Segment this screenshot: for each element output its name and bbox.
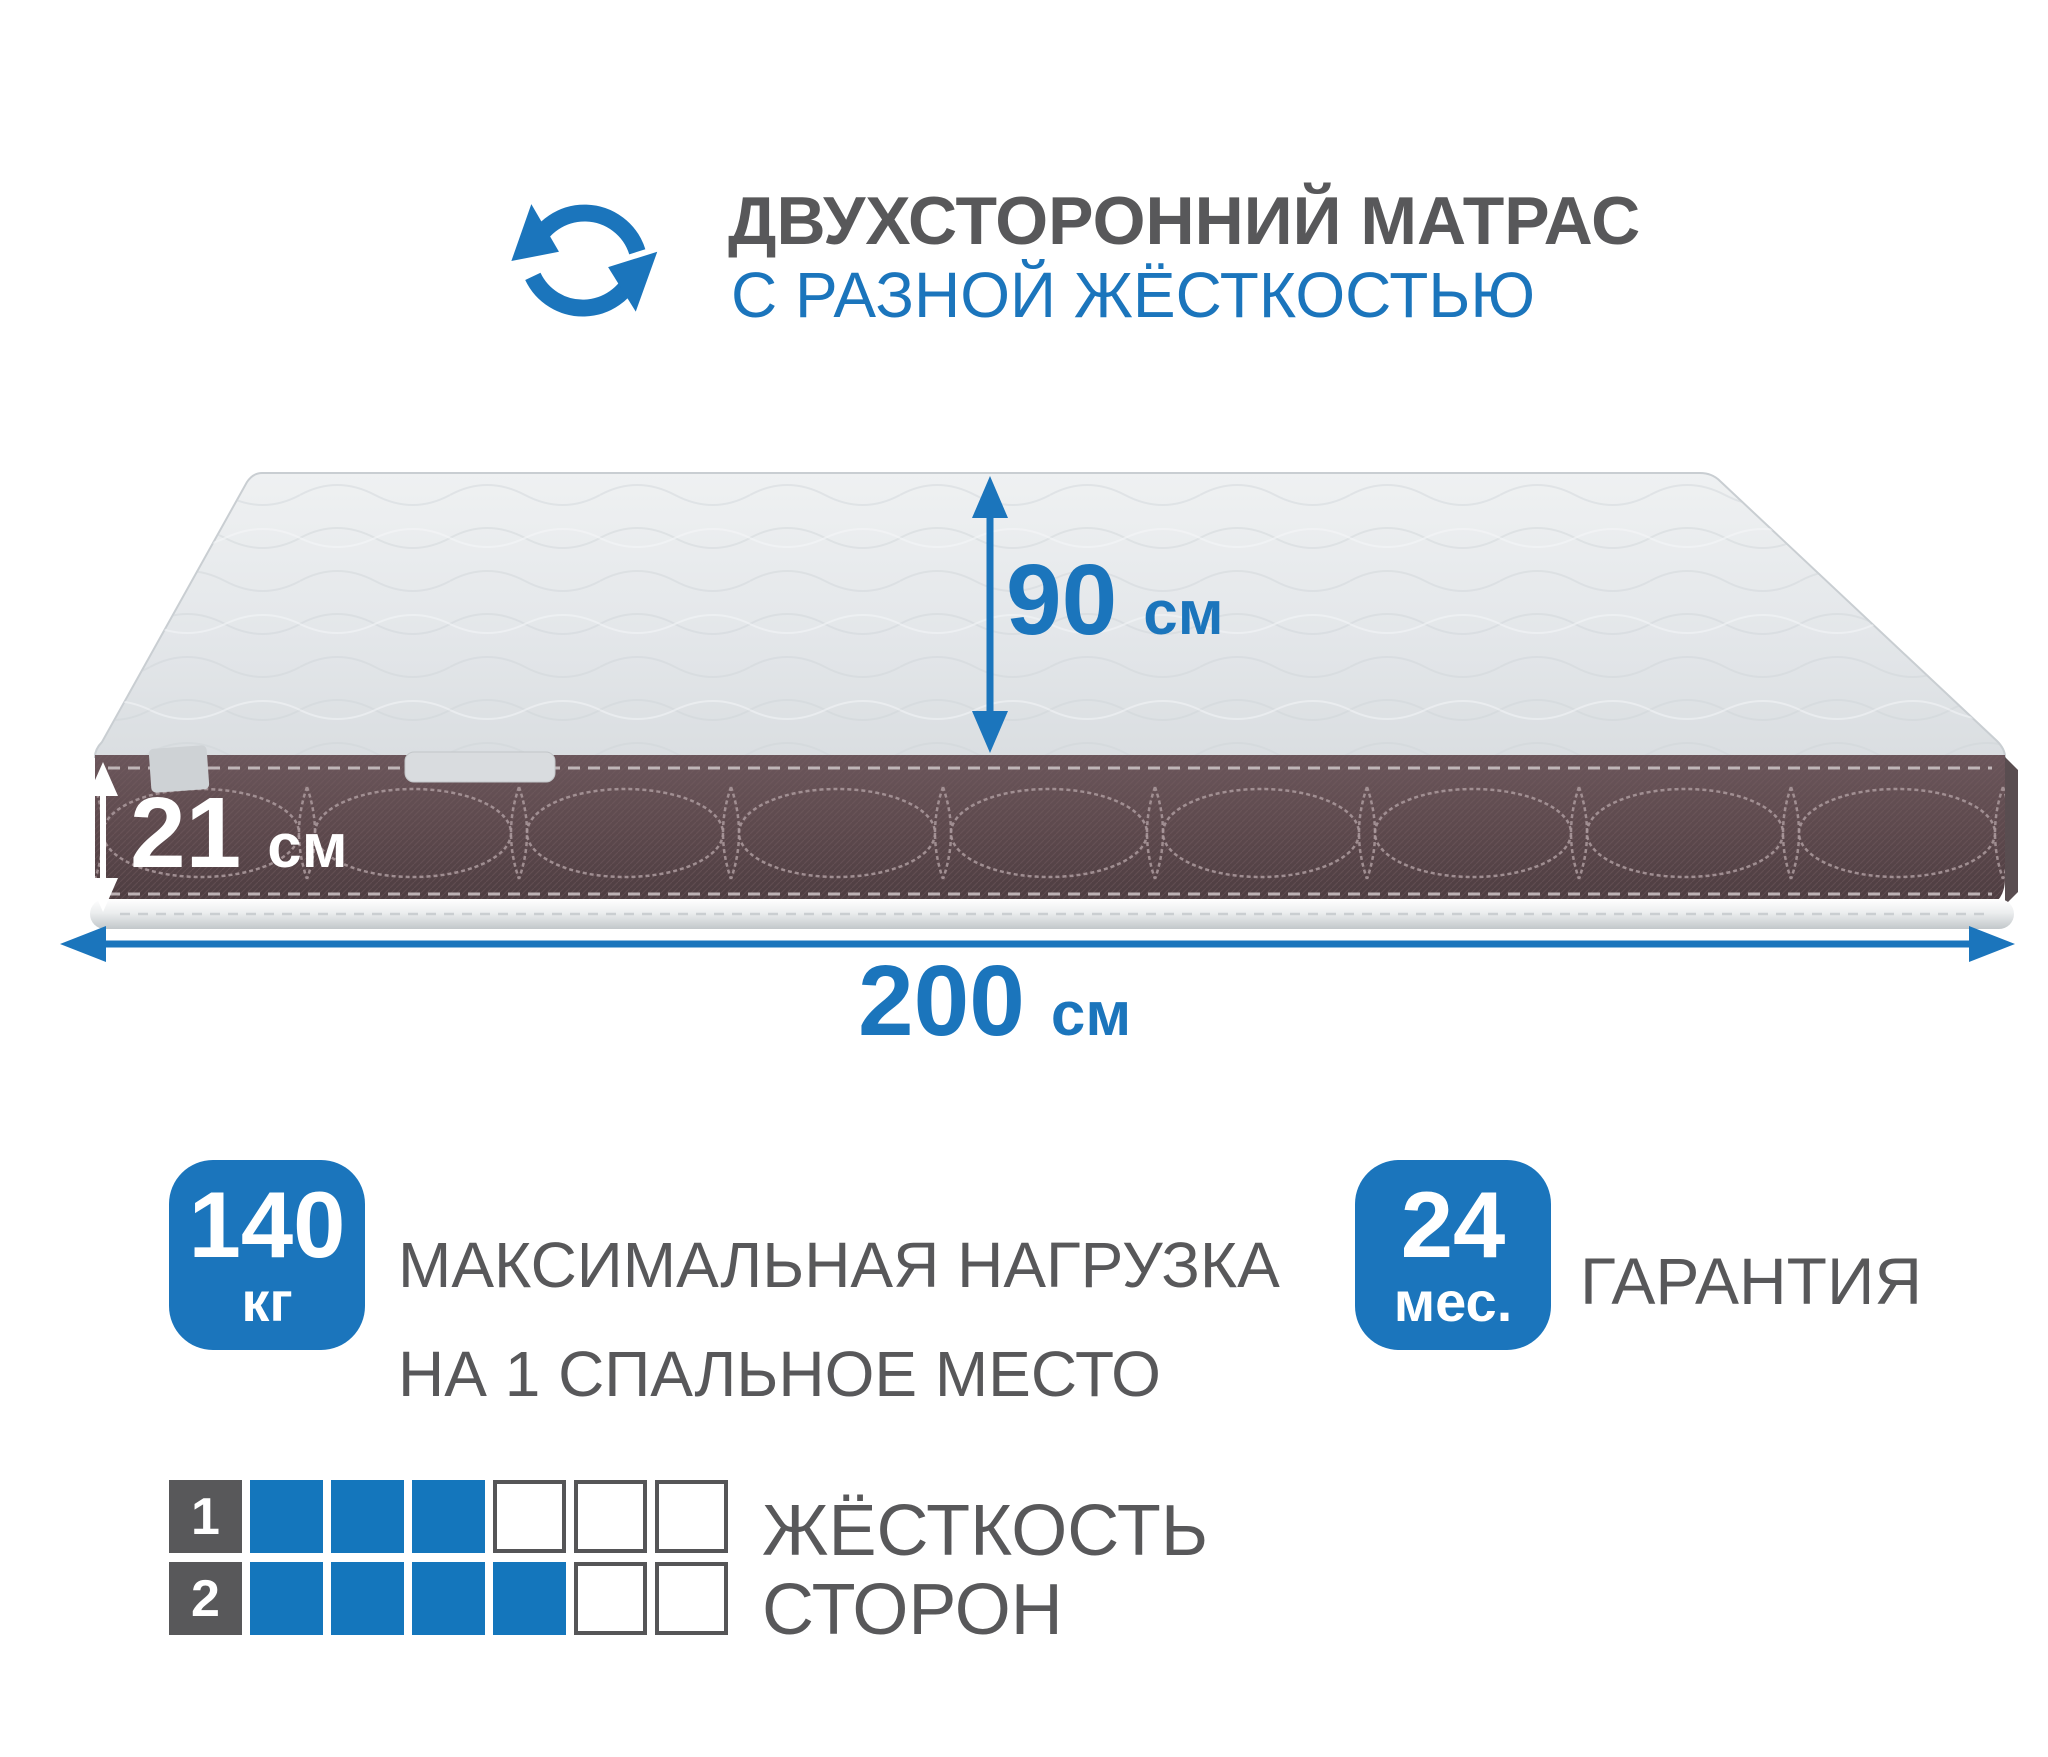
length-value: 200 xyxy=(858,951,1025,1051)
firmness-cell-filled xyxy=(250,1562,323,1635)
warranty-value: 24 xyxy=(1401,1180,1506,1269)
depth-dimension-label: 90 см xyxy=(1006,550,1224,650)
fabric-handle xyxy=(405,752,555,782)
firmness-caption: ЖЁСТКОСТЬ СТОРОН xyxy=(762,1492,1208,1650)
firmness-caption-line2: СТОРОН xyxy=(762,1571,1208,1650)
firmness-cell-filled xyxy=(412,1562,485,1635)
depth-value: 90 xyxy=(1006,550,1117,650)
firmness-cell-filled xyxy=(331,1562,404,1635)
firmness-cell-filled xyxy=(331,1480,404,1553)
firmness-cell-filled xyxy=(493,1562,566,1635)
warranty-unit: мес. xyxy=(1394,1274,1513,1330)
max-load-value: 140 xyxy=(189,1180,346,1269)
max-load-label-line1: МАКСИМАЛЬНАЯ НАГРУЗКА xyxy=(398,1211,1280,1320)
firmness-row-2: 2 xyxy=(169,1562,728,1635)
firmness-cell-empty xyxy=(493,1480,566,1553)
firmness-cell-empty xyxy=(574,1562,647,1635)
firmness-cell-filled xyxy=(250,1480,323,1553)
firmness-cell-empty xyxy=(655,1480,728,1553)
page-title: ДВУХСТОРОННИЙ МАТРАС xyxy=(728,186,1640,257)
max-load-label-line2: НА 1 СПАЛЬНОЕ МЕСТО xyxy=(398,1320,1280,1429)
firmness-cell-filled xyxy=(412,1480,485,1553)
firmness-row-1: 1 xyxy=(169,1480,728,1553)
max-load-unit: кг xyxy=(241,1274,292,1330)
warranty-label: ГАРАНТИЯ xyxy=(1580,1248,1922,1314)
mattress-infographic: { "page": {"background": "#ffffff"}, "co… xyxy=(0,0,2048,1757)
length-unit: см xyxy=(1051,984,1131,1046)
firmness-row-label: 1 xyxy=(169,1480,242,1553)
firmness-scale: 12 xyxy=(169,1480,728,1635)
firmness-cell-empty xyxy=(574,1480,647,1553)
depth-unit: см xyxy=(1143,583,1223,645)
firmness-caption-line1: ЖЁСТКОСТЬ xyxy=(762,1492,1208,1571)
page-subtitle: С РАЗНОЙ ЖЁСТКОСТЬЮ xyxy=(731,262,1535,329)
mattress-right-face xyxy=(2005,757,2018,905)
max-load-badge: 140 кг xyxy=(169,1160,365,1350)
firmness-cell-empty xyxy=(655,1562,728,1635)
rotate-arrows-icon xyxy=(496,166,668,356)
height-dimension-label: 21 см xyxy=(130,783,348,883)
warranty-badge: 24 мес. xyxy=(1355,1160,1551,1350)
firmness-row-label: 2 xyxy=(169,1562,242,1635)
max-load-label: МАКСИМАЛЬНАЯ НАГРУЗКА НА 1 СПАЛЬНОЕ МЕСТ… xyxy=(398,1211,1280,1429)
height-value: 21 xyxy=(130,783,241,883)
mattress-bottom-piping xyxy=(90,899,2014,929)
mattress-side-band xyxy=(95,755,2005,908)
height-unit: см xyxy=(267,816,347,878)
length-dimension-label: 200 см xyxy=(858,951,1131,1051)
